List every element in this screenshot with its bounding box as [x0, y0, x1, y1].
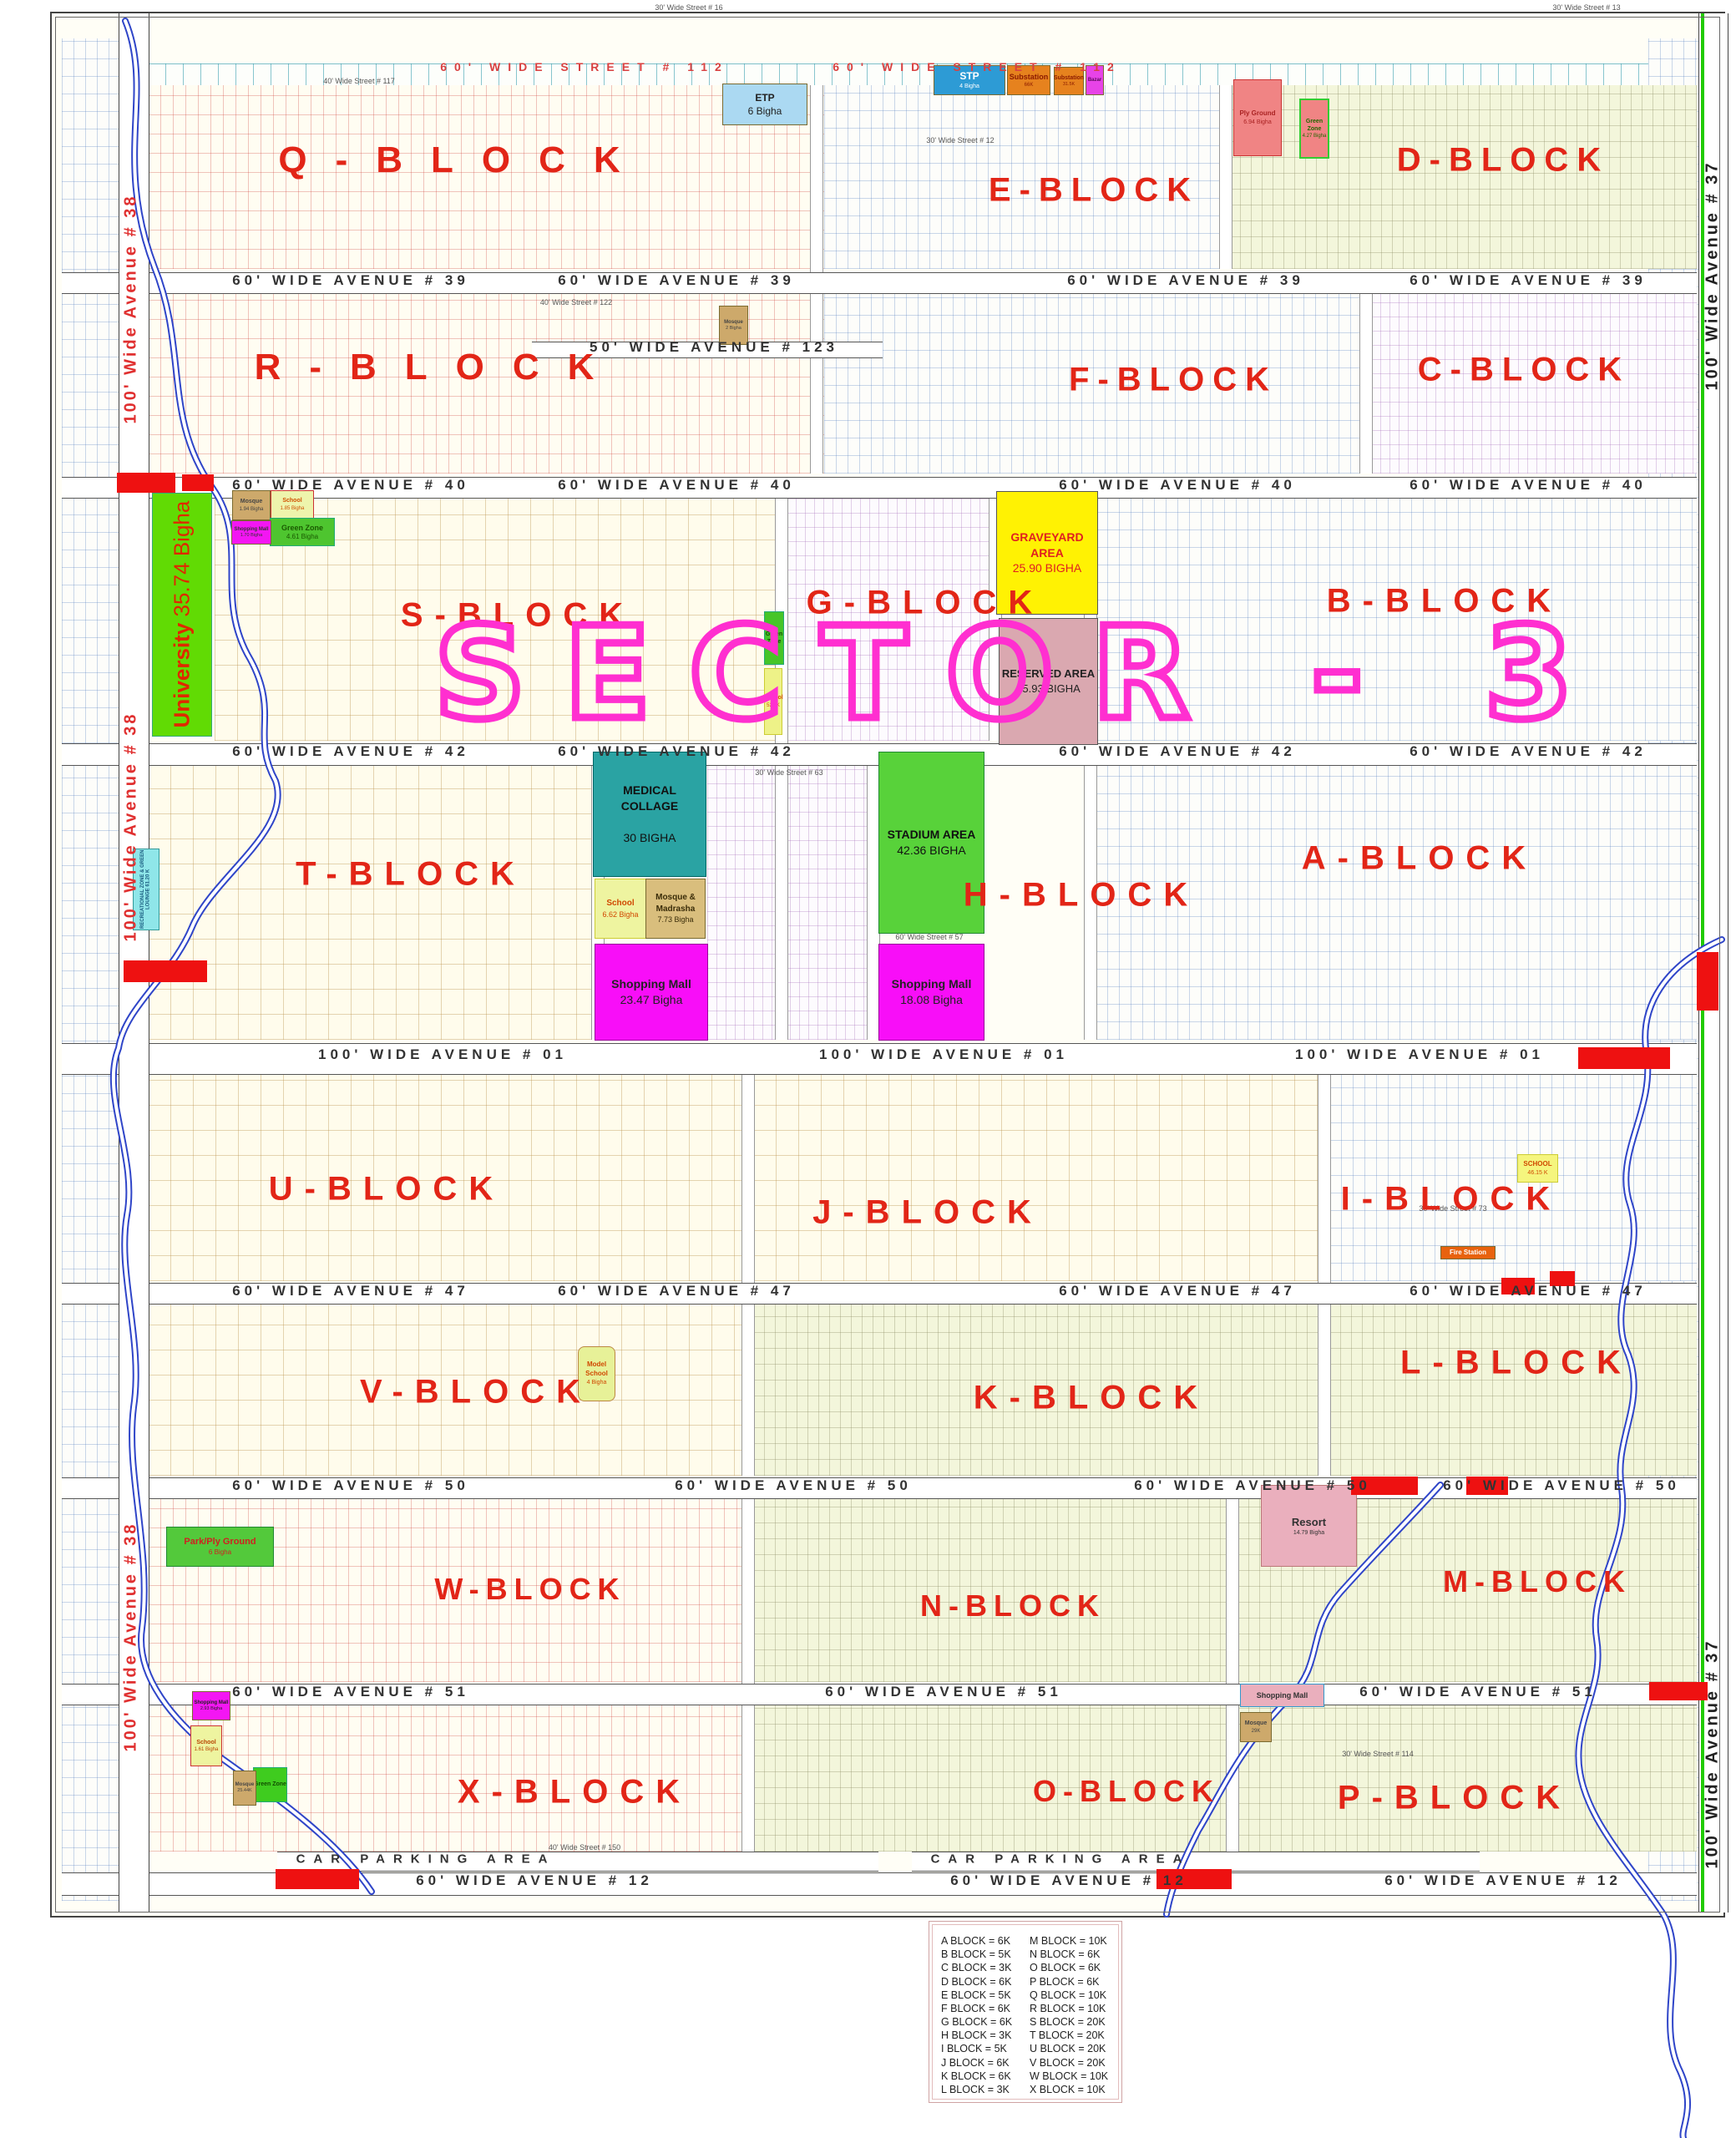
avenue-50-label: 60' WIDE AVENUE # 50	[1134, 1477, 1371, 1494]
legend-entry: G BLOCK = 6K	[941, 2016, 1025, 2028]
block-area-h	[707, 766, 878, 1040]
legend-entry: D BLOCK = 6K	[941, 1976, 1025, 1988]
block-label-j: J-BLOCK	[812, 1194, 1043, 1232]
area-park-ply-ground: Park/Ply Ground6 Bigha	[166, 1527, 274, 1567]
street-vertical	[1359, 294, 1373, 474]
block-label-a: A-BLOCK	[1302, 840, 1537, 878]
street-vertical	[741, 1499, 755, 1852]
sector-title: SECTOR - 3	[434, 600, 1611, 747]
legend-entry: L BLOCK = 3K	[941, 2084, 1025, 2095]
area-shopping-mall-m: Shopping Mall	[1240, 1684, 1324, 1707]
avenue-47-label: 60' WIDE AVENUE # 47	[232, 1283, 469, 1300]
avenue-37-label: 100' Wide Avenue # 37	[1703, 160, 1723, 390]
block-label-f: F-BLOCK	[1069, 362, 1278, 399]
area-mosque-madrasha: Mosque & Madrasha7.73 Bigha	[645, 879, 706, 939]
avenue-40-label: 60' WIDE AVENUE # 40	[1059, 477, 1296, 494]
street-vertical	[741, 1075, 755, 1476]
block-label-o: O-BLOCK	[1033, 1774, 1220, 1809]
road-crossing	[124, 960, 207, 982]
street-112-label: 60' WIDE STREET # 112	[440, 60, 729, 73]
area-medical-college: MEDICAL COLLAGE30 BIGHA	[593, 752, 706, 877]
avenue-39-label: 60' WIDE AVENUE # 39	[558, 272, 795, 289]
area-etp: ETP6 Bigha	[722, 84, 807, 125]
legend-entry: Q BLOCK = 10K	[1030, 1989, 1113, 2001]
avenue-51-label: 60' WIDE AVENUE # 51	[1359, 1684, 1597, 1700]
area-shopping-mall-18: Shopping Mall18.08 Bigha	[878, 944, 984, 1041]
block-label-m: M-BLOCK	[1443, 1564, 1632, 1599]
block-label-c: C-BLOCK	[1418, 352, 1630, 389]
block-label-h: H-BLOCK	[964, 877, 1199, 914]
road-crossing	[1649, 1682, 1708, 1700]
left-plot-column	[62, 38, 119, 1901]
avenue-47-label: 60' WIDE AVENUE # 47	[1410, 1283, 1647, 1300]
avenue-50-label: 60' WIDE AVENUE # 50	[232, 1477, 469, 1494]
avenue-47-label: 60' WIDE AVENUE # 47	[1059, 1283, 1296, 1300]
legend-column-left: A BLOCK = 6K B BLOCK = 5K C BLOCK = 3K D…	[941, 1935, 1025, 2095]
avenue-40-label: 60' WIDE AVENUE # 40	[558, 477, 795, 494]
legend-entry: U BLOCK = 20K	[1030, 2043, 1113, 2054]
block-label-x: X-BLOCK	[458, 1774, 691, 1811]
legend-entry: T BLOCK = 20K	[1030, 2029, 1113, 2041]
block-label-d: D-BLOCK	[1397, 142, 1609, 180]
legend-entry: K BLOCK = 6K	[941, 2070, 1025, 2082]
avenue-40-label: 60' WIDE AVENUE # 40	[232, 477, 469, 494]
area-school-t: School6.62 Bigha	[595, 879, 646, 939]
avenue-40-label: 60' WIDE AVENUE # 40	[1410, 477, 1647, 494]
street-vertical	[1219, 85, 1232, 269]
sector-3-map-page: { "map": { "title": "SECTOR - 3", "block…	[0, 0, 1736, 2138]
area-ply-ground-d: Ply Ground6.94 Bigha	[1233, 79, 1282, 156]
area-green-zone-s: Green Zone4.61 Bigha	[270, 518, 335, 546]
legend-entry: S BLOCK = 20K	[1030, 2016, 1113, 2028]
legend-entry: V BLOCK = 20K	[1030, 2057, 1113, 2069]
block-area-l	[1329, 1305, 1697, 1476]
avenue-01-label: 100' WIDE AVENUE # 01	[819, 1046, 1068, 1063]
area-shopping-mall-23: Shopping Mall23.47 Bigha	[595, 944, 708, 1041]
area-green-zone-x: Green Zone	[253, 1767, 287, 1802]
legend-entry: I BLOCK = 5K	[941, 2043, 1025, 2054]
road-crossing	[276, 1869, 359, 1889]
minor-street-label: 40' Wide Street # 117	[323, 77, 395, 85]
legend-column-right: M BLOCK = 10K N BLOCK = 6K O BLOCK = 6K …	[1030, 1935, 1113, 2095]
legend-entry: H BLOCK = 3K	[941, 2029, 1025, 2041]
minor-street-label: 60' Wide Street # 57	[895, 933, 963, 941]
road-crossing	[1578, 1047, 1670, 1069]
legend-entry: E BLOCK = 5K	[941, 1989, 1025, 2001]
avenue-12-label: 60' WIDE AVENUE # 12	[1384, 1872, 1622, 1889]
area-school-s: School1.85 Bigha	[271, 490, 314, 519]
area-mosque-m: Mosque29K	[1240, 1712, 1272, 1742]
minor-street-label: 30' Wide Street # 13	[1552, 3, 1620, 12]
minor-street-label: 30' Wide Street # 12	[926, 136, 994, 144]
road-crossing	[117, 473, 175, 493]
road-crossing	[182, 474, 214, 491]
area-school-x: School1.61 Bigha	[190, 1725, 222, 1766]
car-parking-label: CAR PARKING AREA	[931, 1852, 1191, 1867]
legend-entry: R BLOCK = 10K	[1030, 2003, 1113, 2014]
block-label-r: R-BLOCK	[255, 347, 623, 388]
block-label-w: W-BLOCK	[434, 1572, 625, 1607]
area-green-zone-d: Green Zone4.27 Bigha	[1299, 99, 1329, 159]
block-area-j	[753, 1075, 1329, 1281]
avenue-47-label: 60' WIDE AVENUE # 47	[558, 1283, 795, 1300]
block-label-e: E-BLOCK	[989, 172, 1199, 210]
block-label-i: I-BLOCK	[1341, 1181, 1562, 1218]
avenue-01-label: 100' WIDE AVENUE # 01	[1295, 1046, 1544, 1063]
avenue-51-label: 60' WIDE AVENUE # 51	[232, 1684, 469, 1700]
legend-entry: B BLOCK = 5K	[941, 1948, 1025, 1960]
minor-street-label: 40' Wide Street # 150	[549, 1843, 620, 1852]
area-shopping-mall-s: Shopping Mall1.70 Bigha	[231, 520, 271, 545]
block-label-q: Q-BLOCK	[278, 139, 648, 181]
avenue-01-label: 100' WIDE AVENUE # 01	[318, 1046, 567, 1063]
block-area-p	[1237, 1705, 1697, 1852]
car-parking-label: CAR PARKING AREA	[296, 1852, 556, 1867]
legend-entry: F BLOCK = 6K	[941, 2003, 1025, 2014]
avenue-39-label: 60' WIDE AVENUE # 39	[1067, 272, 1304, 289]
block-area-i	[1329, 1075, 1697, 1281]
avenue-50-label: 60' WIDE AVENUE # 50	[1443, 1477, 1680, 1494]
street-112-label: 60' WIDE STREET # 112	[833, 60, 1121, 73]
legend-entry: M BLOCK = 10K	[1030, 1935, 1113, 1947]
block-label-u: U-BLOCK	[269, 1171, 504, 1208]
avenue-39-label: 60' WIDE AVENUE # 39	[232, 272, 469, 289]
block-label-l: L-BLOCK	[1400, 1345, 1632, 1382]
legend-entry: O BLOCK = 6K	[1030, 1962, 1113, 1973]
block-area-t	[148, 766, 595, 1040]
legend-entry: X BLOCK = 10K	[1030, 2084, 1113, 2095]
legend-box: A BLOCK = 6K B BLOCK = 5K C BLOCK = 3K D…	[929, 1921, 1122, 2103]
area-fire-station: Fire Station	[1440, 1246, 1496, 1259]
area-mosque-x: Mosque25.44K	[233, 1771, 256, 1806]
area-university: University 35.74 Bigha	[152, 493, 212, 737]
avenue-50-label: 60' WIDE AVENUE # 50	[675, 1477, 912, 1494]
minor-street-label: 30' Wide Street # 63	[755, 768, 822, 777]
road-crossing	[1697, 952, 1718, 1011]
area-resort: Resort14.79 Bigha	[1261, 1485, 1357, 1567]
avenue-39-label: 60' WIDE AVENUE # 39	[1410, 272, 1647, 289]
legend-entry: P BLOCK = 6K	[1030, 1976, 1113, 1988]
legend-entry: J BLOCK = 6K	[941, 2057, 1025, 2069]
street-vertical	[1226, 1499, 1239, 1852]
block-label-k: K-BLOCK	[974, 1380, 1209, 1417]
avenue-12-label: 60' WIDE AVENUE # 12	[950, 1872, 1187, 1889]
legend-entry: C BLOCK = 3K	[941, 1962, 1025, 1973]
block-label-t: T-BLOCK	[296, 856, 526, 894]
avenue-12-label: 60' WIDE AVENUE # 12	[416, 1872, 653, 1889]
block-label-v: V-BLOCK	[360, 1374, 592, 1411]
avenue-38-label: 100' Wide Avenue # 38	[122, 1522, 141, 1751]
street-vertical	[1318, 1075, 1331, 1476]
area-shopping-mall-x: Shopping Mall2.93 Bigha	[192, 1691, 230, 1720]
avenue-51-label: 60' WIDE AVENUE # 51	[825, 1684, 1062, 1700]
block-label-n: N-BLOCK	[920, 1588, 1106, 1624]
minor-street-label: 30' Wide Street # 16	[655, 3, 722, 12]
area-school-i: SCHOOL46.15 K	[1517, 1154, 1558, 1183]
avenue-123-label: 50' WIDE AVENUE # 123	[590, 339, 838, 356]
avenue-38-label: 100' Wide Avenue # 38	[122, 712, 141, 941]
area-mosque-s: Mosque1.94 Bigha	[232, 490, 271, 520]
legend-entry: W BLOCK = 10K	[1030, 2070, 1113, 2082]
legend-entry: A BLOCK = 6K	[941, 1935, 1025, 1947]
avenue-38-label: 100' Wide Avenue # 38	[122, 194, 141, 423]
minor-street-label: 40' Wide Street # 122	[540, 298, 612, 307]
avenue-37-label: 100' Wide Avenue # 37	[1703, 1639, 1723, 1868]
block-label-p: P-BLOCK	[1338, 1780, 1572, 1817]
legend-entry: N BLOCK = 6K	[1030, 1948, 1113, 1960]
minor-street-label: 30' Wide Street # 114	[1342, 1750, 1414, 1758]
